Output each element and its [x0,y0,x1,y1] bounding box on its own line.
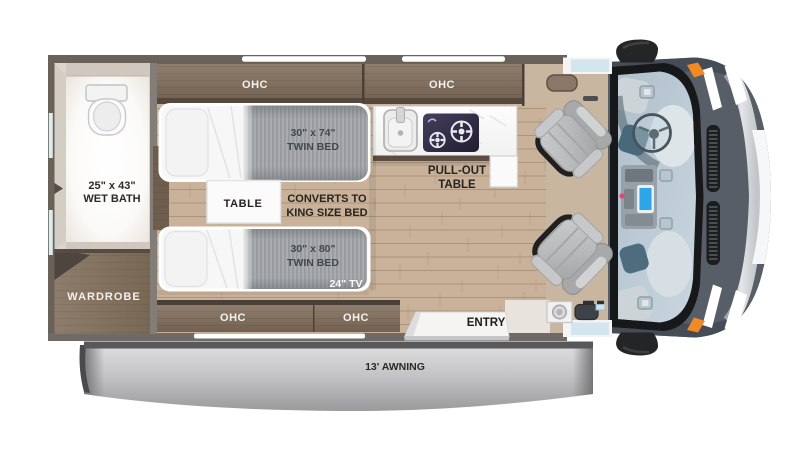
svg-text:OHC: OHC [343,312,369,324]
svg-text:WET BATH: WET BATH [83,193,140,205]
svg-text:TABLE: TABLE [224,198,263,210]
svg-text:30" x 80": 30" x 80" [291,243,336,255]
svg-text:CONVERTS TO: CONVERTS TO [287,193,367,205]
svg-text:24" TV: 24" TV [330,278,363,290]
svg-text:TWIN BED: TWIN BED [287,257,339,269]
svg-text:PULL-OUT: PULL-OUT [428,165,486,177]
svg-text:ENTRY: ENTRY [467,317,506,329]
svg-text:OHC: OHC [220,312,246,324]
svg-text:13' AWNING: 13' AWNING [365,361,425,373]
svg-text:TWIN BED: TWIN BED [287,141,339,153]
svg-text:KING SIZE BED: KING SIZE BED [286,207,367,219]
svg-text:TABLE: TABLE [438,179,476,191]
svg-text:25" x 43": 25" x 43" [88,180,135,192]
svg-text:OHC: OHC [429,79,455,91]
svg-text:WARDROBE: WARDROBE [67,291,140,303]
svg-text:OHC: OHC [242,79,268,91]
svg-text:30" x 74": 30" x 74" [291,127,336,139]
